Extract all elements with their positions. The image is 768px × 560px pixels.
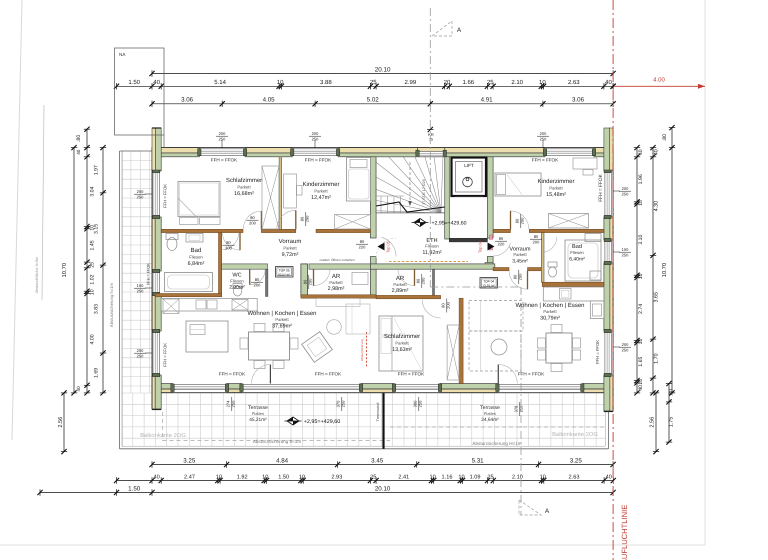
svg-text:2.74: 2.74: [638, 304, 644, 314]
svg-text:.80: .80: [669, 389, 675, 397]
svg-text:6,40m²: 6,40m²: [569, 257, 585, 263]
svg-text:40: 40: [638, 385, 644, 391]
svg-text:4.30: 4.30: [654, 201, 660, 212]
svg-text:NA: NA: [119, 52, 126, 57]
svg-text:Parkett: Parkett: [329, 280, 343, 285]
svg-text:3.06: 3.06: [181, 97, 194, 104]
svg-text:13,63m²: 13,63m²: [392, 347, 412, 353]
svg-text:200: 200: [540, 131, 547, 136]
svg-text:.80: .80: [662, 134, 668, 141]
svg-text:AR: AR: [332, 273, 341, 280]
svg-text:10: 10: [90, 289, 96, 295]
svg-text:40: 40: [606, 474, 612, 480]
svg-text:6,84m²: 6,84m²: [188, 261, 205, 267]
svg-text:Parkett: Parkett: [549, 186, 563, 191]
svg-text:3.83: 3.83: [94, 304, 100, 314]
svg-text:1.96: 1.96: [638, 174, 644, 184]
svg-text:1.75: 1.75: [669, 417, 675, 428]
svg-text:3.25: 3.25: [570, 457, 583, 464]
svg-text:3.45: 3.45: [371, 457, 384, 464]
svg-text:AR: AR: [396, 275, 405, 282]
svg-text:FFH = FFOK: FFH = FFOK: [398, 372, 425, 377]
svg-text:Parkett: Parkett: [275, 317, 289, 322]
svg-text:4.00: 4.00: [653, 77, 665, 84]
svg-text:+2,95=+429,60: +2,95=+429,60: [431, 221, 466, 227]
svg-text:10: 10: [638, 339, 644, 345]
svg-text:10: 10: [277, 79, 284, 86]
svg-text:65,57 m²: 65,57 m²: [278, 272, 290, 276]
svg-text:FFH = FFOK: FFH = FFOK: [595, 340, 600, 364]
svg-text:FFH = FFOK: FFH = FFOK: [518, 372, 545, 377]
svg-text:20: 20: [444, 79, 451, 86]
svg-text:5.31: 5.31: [472, 457, 485, 464]
svg-text:100: 100: [137, 283, 144, 288]
svg-text:250: 250: [341, 400, 346, 407]
svg-text:24,64m²: 24,64m²: [481, 417, 499, 423]
svg-text:25: 25: [370, 474, 376, 480]
svg-text:Wohnen | Kochen | Essen: Wohnen | Kochen | Essen: [515, 302, 584, 309]
svg-text:200: 200: [249, 220, 256, 225]
svg-text:3.25: 3.25: [183, 457, 196, 464]
svg-text:10.70: 10.70: [661, 263, 668, 278]
svg-text:Bad: Bad: [572, 243, 582, 250]
svg-text:250: 250: [231, 400, 236, 407]
svg-text:Abstandsfläche h=9m: Abstandsfläche h=9m: [35, 257, 39, 294]
svg-text:200: 200: [254, 282, 261, 287]
svg-text:20.10: 20.10: [375, 66, 391, 73]
svg-text:90: 90: [499, 236, 504, 241]
svg-text:Balkonkante 2OG: Balkonkante 2OG: [552, 431, 598, 438]
svg-text:1.09: 1.09: [470, 474, 481, 480]
svg-text:250: 250: [219, 136, 226, 141]
svg-text:1.50: 1.50: [128, 485, 141, 492]
svg-text:10: 10: [540, 474, 546, 480]
svg-text:Trennwand: Trennwand: [376, 403, 380, 422]
svg-text:FFH = FFOK: FFH = FFOK: [532, 158, 559, 163]
svg-text:2.93: 2.93: [331, 474, 342, 480]
svg-text:200: 200: [533, 239, 540, 244]
svg-text:KR: KR: [428, 132, 434, 137]
svg-text:2.10: 2.10: [511, 79, 523, 86]
svg-text:3.06: 3.06: [572, 97, 585, 104]
svg-text:1.16: 1.16: [442, 474, 453, 480]
svg-text:FFH = FFOK: FFH = FFOK: [163, 343, 168, 367]
svg-text:200: 200: [520, 217, 525, 224]
svg-text:2,98m²: 2,98m²: [328, 286, 345, 292]
svg-text:10: 10: [638, 379, 644, 385]
svg-text:4.05: 4.05: [263, 97, 276, 104]
svg-text:Bad: Bad: [191, 247, 202, 254]
svg-text:FFH = FFOK: FFH = FFOK: [211, 158, 238, 163]
svg-text:17 STG 17,5/29: 17 STG 17,5/29: [422, 179, 426, 204]
svg-text:Kinderzimmer: Kinderzimmer: [302, 181, 339, 188]
svg-text:LIFT: LIFT: [464, 163, 474, 168]
svg-text:1.66: 1.66: [462, 79, 474, 86]
svg-text:200: 200: [446, 301, 451, 308]
svg-text:Parkett: Parkett: [393, 282, 407, 287]
svg-text:25: 25: [487, 474, 493, 480]
svg-text:220: 220: [359, 244, 366, 249]
svg-text:200: 200: [421, 277, 426, 284]
svg-text:3.10: 3.10: [638, 234, 644, 244]
svg-text:200: 200: [225, 245, 232, 250]
svg-text:4.91: 4.91: [481, 97, 494, 104]
svg-text:200: 200: [137, 189, 144, 194]
svg-text:10: 10: [299, 474, 305, 480]
svg-text:BAUFLUCHTLINIE: BAUFLUCHTLINIE: [620, 505, 629, 560]
svg-text:250: 250: [137, 288, 144, 293]
svg-text:40: 40: [153, 79, 160, 86]
svg-text:250: 250: [622, 252, 629, 257]
svg-text:Platten: Platten: [484, 411, 496, 416]
svg-text:40: 40: [605, 79, 612, 86]
svg-text:100: 100: [622, 247, 629, 252]
svg-text:Fliesen: Fliesen: [425, 244, 439, 249]
svg-text:4.00: 4.00: [90, 334, 96, 344]
svg-text:250: 250: [137, 353, 144, 358]
svg-text:10: 10: [638, 200, 644, 206]
svg-text:3.15: 3.15: [94, 224, 100, 234]
svg-text:Schlafzimmer: Schlafzimmer: [384, 333, 420, 340]
svg-text:FFH = FFOK: FFH = FFOK: [598, 173, 604, 201]
svg-text:2.99: 2.99: [405, 79, 417, 86]
svg-text:200: 200: [312, 131, 319, 136]
svg-text:12,47m²: 12,47m²: [311, 195, 331, 201]
svg-text:80: 80: [250, 215, 255, 220]
svg-text:Vorraum: Vorraum: [279, 238, 302, 245]
svg-text:FFH = FFOK: FFH = FFOK: [163, 184, 168, 208]
svg-text:A: A: [545, 508, 550, 515]
svg-text:5.14: 5.14: [214, 79, 226, 86]
svg-text:250: 250: [418, 400, 423, 407]
svg-text:250: 250: [312, 136, 319, 141]
svg-text:20.10: 20.10: [375, 485, 391, 492]
svg-text:250: 250: [622, 191, 629, 196]
svg-text:Parkett: Parkett: [237, 185, 251, 190]
svg-text:1.69: 1.69: [94, 368, 100, 378]
svg-text:+2,95=+429,60: +2,95=+429,60: [304, 419, 340, 425]
svg-text:200: 200: [622, 342, 629, 347]
svg-text:2.56: 2.56: [58, 417, 64, 428]
svg-text:Balkonkante 2OG: Balkonkante 2OG: [140, 432, 186, 439]
svg-text:37,69m²: 37,69m²: [272, 324, 292, 330]
svg-text:Parkett: Parkett: [314, 189, 328, 194]
svg-text:25: 25: [487, 79, 494, 86]
svg-text:FFH = FFOK: FFH = FFOK: [219, 372, 246, 377]
svg-text:200: 200: [518, 273, 523, 280]
svg-text:zusätzl. Öffnen vorsehen: zusätzl. Öffnen vorsehen: [319, 258, 354, 262]
svg-text:10: 10: [429, 474, 435, 480]
svg-text:16,68m²: 16,68m²: [234, 191, 254, 197]
svg-text:10: 10: [539, 79, 546, 86]
svg-text:250: 250: [622, 347, 629, 352]
svg-text:FFH = FFOK: FFH = FFOK: [147, 263, 151, 285]
svg-text:1.50: 1.50: [128, 79, 140, 86]
svg-text:2.41: 2.41: [398, 474, 409, 480]
svg-text:1.50: 1.50: [278, 474, 289, 480]
svg-text:1.65: 1.65: [638, 356, 644, 366]
svg-text:200: 200: [622, 186, 629, 191]
svg-text:75: 75: [429, 138, 433, 142]
svg-text:10: 10: [216, 474, 222, 480]
svg-text:10: 10: [262, 474, 268, 480]
svg-text:3,45m²: 3,45m²: [512, 259, 528, 265]
svg-text:Top 04: Top 04: [478, 240, 483, 253]
svg-text:45,21m²: 45,21m²: [249, 417, 267, 423]
svg-text:FFH = FFOK: FFH = FFOK: [305, 158, 332, 163]
svg-text:4.84: 4.84: [276, 457, 289, 464]
svg-text:Absturzsicherung H=1m: Absturzsicherung H=1m: [472, 441, 521, 446]
svg-text:Top 05: Top 05: [386, 240, 391, 253]
svg-text:3.65: 3.65: [654, 292, 660, 303]
svg-text:2.63: 2.63: [568, 79, 580, 86]
svg-text:2.56: 2.56: [650, 417, 656, 428]
svg-text:80: 80: [226, 240, 231, 245]
svg-text:3.88: 3.88: [320, 79, 332, 86]
svg-text:1.97: 1.97: [94, 165, 100, 175]
svg-text:Schlafzimmer: Schlafzimmer: [226, 177, 262, 184]
svg-text:Parkett: Parkett: [543, 309, 557, 314]
svg-text:1.70: 1.70: [654, 353, 660, 364]
svg-text:Kinderzimmer: Kinderzimmer: [537, 178, 574, 185]
svg-text:Parkett: Parkett: [395, 341, 409, 346]
svg-text:1.45: 1.45: [90, 240, 96, 250]
svg-text:2,89m²: 2,89m²: [392, 288, 409, 294]
svg-text:40: 40: [638, 149, 644, 155]
svg-text:5.02: 5.02: [367, 97, 380, 104]
svg-text:40: 40: [76, 149, 81, 155]
svg-text:25: 25: [90, 262, 96, 268]
svg-text:220: 220: [498, 241, 505, 246]
svg-text:1.92: 1.92: [237, 474, 248, 480]
svg-text:200: 200: [308, 278, 313, 285]
svg-text:Fliesen: Fliesen: [189, 255, 203, 260]
svg-text:10.70: 10.70: [61, 263, 68, 278]
svg-text:80: 80: [255, 277, 260, 282]
svg-text:Parkett: Parkett: [283, 246, 297, 251]
svg-text:1.02: 1.02: [90, 274, 96, 284]
svg-text:80: 80: [534, 234, 539, 239]
svg-text:30,79m²: 30,79m²: [540, 316, 560, 322]
svg-text:Absturzsicherung: Absturzsicherung: [360, 339, 364, 361]
svg-text:10: 10: [458, 474, 464, 480]
svg-text:200: 200: [137, 348, 144, 353]
svg-text:Absturzsicherung h=1m: Absturzsicherung h=1m: [253, 439, 302, 444]
svg-text:2.47: 2.47: [184, 474, 195, 480]
svg-text:2.63: 2.63: [569, 474, 580, 480]
svg-text:Platten: Platten: [252, 411, 264, 416]
svg-text:250: 250: [540, 136, 547, 141]
svg-text:9,72m²: 9,72m²: [282, 252, 299, 258]
svg-text:Fliesen: Fliesen: [570, 250, 584, 255]
svg-text:40: 40: [654, 149, 660, 155]
svg-text:Fliesen: Fliesen: [230, 279, 244, 284]
svg-text:Wohnen | Kochen | Essen: Wohnen | Kochen | Essen: [247, 310, 316, 317]
svg-text:15,48m²: 15,48m²: [546, 192, 566, 198]
svg-text:Absturzsicherung h=1m: Absturzsicherung h=1m: [109, 282, 114, 327]
svg-text:10: 10: [638, 273, 644, 279]
svg-text:200: 200: [219, 131, 226, 136]
svg-text:11,92m²: 11,92m²: [422, 250, 442, 256]
svg-text:FFH = FFOK: FFH = FFOK: [315, 372, 342, 377]
svg-text:A: A: [457, 27, 462, 34]
svg-text:Parkett: Parkett: [513, 252, 527, 257]
svg-text:3.04: 3.04: [90, 186, 96, 196]
svg-text:90: 90: [360, 239, 365, 244]
svg-text:200: 200: [305, 215, 310, 222]
svg-text:40: 40: [153, 474, 159, 480]
svg-text:25: 25: [370, 79, 377, 86]
svg-text:250: 250: [137, 194, 144, 199]
svg-text:2,00m²: 2,00m²: [229, 285, 245, 291]
svg-text:.80: .80: [76, 135, 82, 142]
